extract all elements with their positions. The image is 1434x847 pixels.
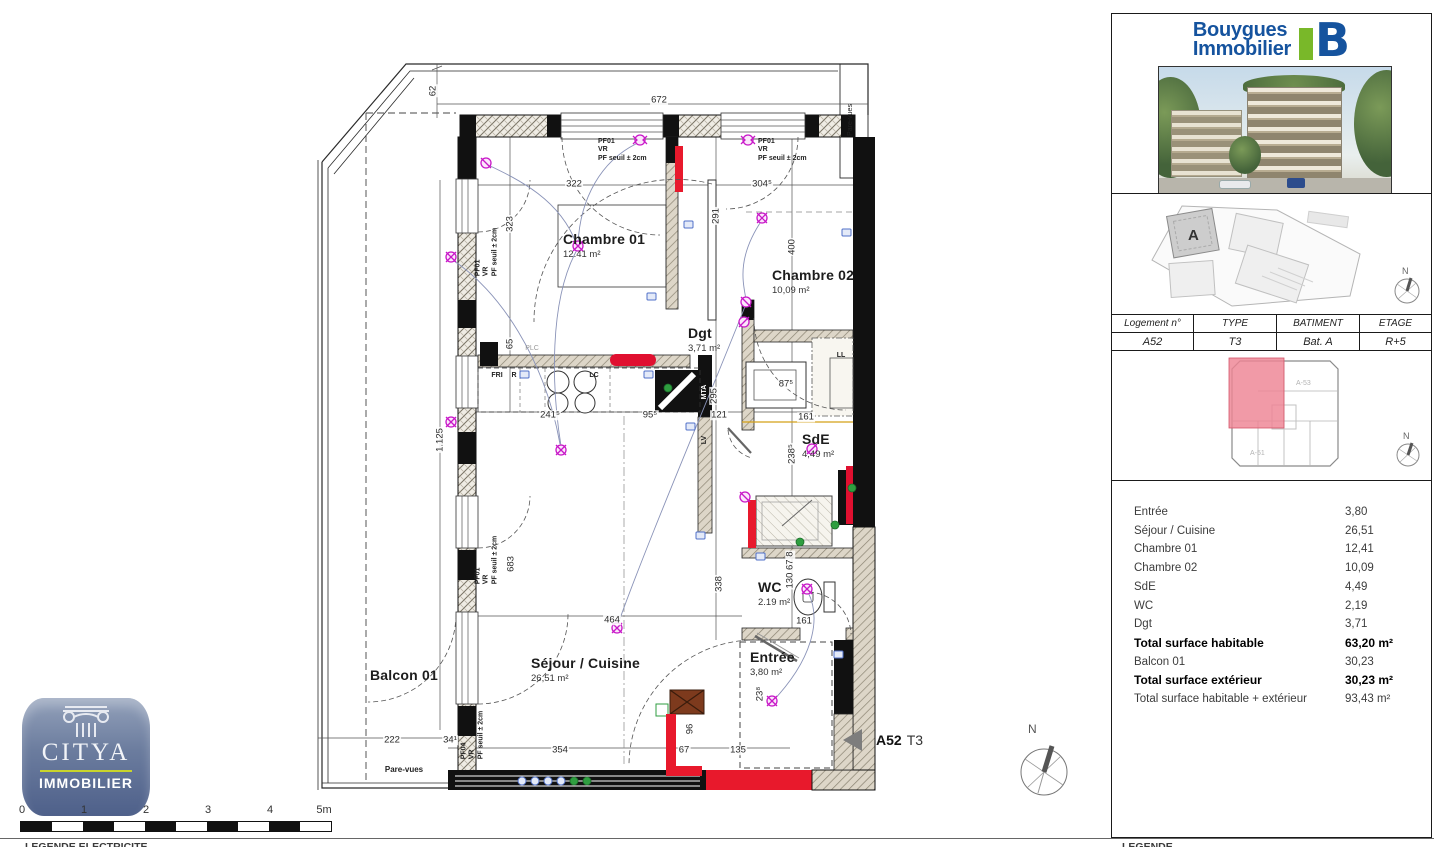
svg-text:A-51: A-51 — [1250, 450, 1265, 457]
site-plan-drawing: A N — [1112, 194, 1431, 313]
dimension-label: 295 — [709, 387, 719, 405]
area-row: SdE4,49 — [1134, 578, 1419, 597]
area-row: Chambre 0210,09 — [1134, 559, 1419, 578]
bouygues-logo: Bouygues Immobilier B — [1112, 14, 1431, 66]
bouygues-b-icon: B — [1299, 20, 1350, 60]
key-plan-compass-icon: N — [1397, 431, 1419, 466]
dimension-label: 338 — [714, 575, 724, 593]
svg-text:N: N — [1402, 266, 1409, 276]
dimension-label: 354 — [551, 745, 569, 755]
pare-vues-label: Pare-vues — [385, 765, 423, 775]
dimension-label: 96 — [685, 723, 695, 736]
svg-text:A: A — [1188, 227, 1199, 244]
citya-divider — [40, 770, 132, 772]
table-header: BATIMENT — [1277, 315, 1360, 333]
citya-logo: CITYA IMMOBILIER — [22, 698, 150, 816]
areas-table: Entrée3,80 Séjour / Cuisine26,51 Chambre… — [1112, 479, 1431, 709]
key-plan-panel: A-53 A-51 N — [1112, 350, 1431, 481]
table-header: Logement n° — [1112, 315, 1194, 333]
dimension-label: 95⁵ — [642, 410, 659, 420]
site-plan-panel: A N — [1112, 193, 1431, 315]
window-label-pf01: PF01 VR PF seuil ± 2cm — [474, 228, 499, 277]
citya-name: CITYA — [42, 739, 131, 767]
window-label-pf01: PF01 VR PF seuil ± 2cm — [474, 536, 499, 585]
room-label-chambre-02: Chambre 02 10,09 m² — [772, 268, 854, 297]
scale-bar-segments — [20, 821, 332, 832]
dimension-label: 65 — [505, 338, 515, 351]
sheet: Chambre 01 12.41 m² Chambre 02 10,09 m² … — [0, 0, 1434, 847]
dimension-label: 1.125 — [435, 427, 445, 453]
room-label-dgt: Dgt 3,71 m² — [688, 326, 720, 355]
dimension-label: 161 — [795, 616, 813, 626]
dimension-label: 683 — [506, 555, 516, 573]
window-label-pf04: PF04 VR PF seuil ± 2cm — [460, 711, 485, 760]
svg-text:A-53: A-53 — [1296, 380, 1311, 387]
window-label-pf01: PF01 VR PF seuil ± 2cm — [598, 138, 647, 163]
scale-bar: 0 1 2 3 4 5m — [20, 804, 332, 832]
area-row: Chambre 0112,41 — [1134, 540, 1419, 559]
dimension-label: 241⁵ — [539, 410, 561, 420]
dimension-label: 23⁸ — [755, 686, 765, 703]
building-render-photo — [1158, 66, 1392, 194]
dimension-label: 130 67 8 — [785, 551, 795, 590]
key-plan-drawing: A-53 A-51 N — [1112, 351, 1431, 478]
dimension-label: 323 — [505, 215, 515, 233]
area-row: Entrée3,80 — [1134, 503, 1419, 522]
area-row-total-exterieur: Total surface extérieur30,23 m² — [1134, 671, 1419, 690]
table-value-type: T3 — [1194, 333, 1277, 351]
scale-ticks: 0 1 2 3 4 5m — [20, 804, 332, 818]
title-block-sidebar: Bouygues Immobilier B — [1111, 13, 1432, 838]
room-label-sde: SdE 4,49 m² — [802, 432, 834, 461]
dimension-label: 672 — [650, 95, 668, 105]
floor-plan-area: Chambre 01 12.41 m² Chambre 02 10,09 m² … — [0, 0, 1111, 838]
dimension-label: 322 — [565, 179, 583, 189]
dimension-label: 238⁵ — [787, 443, 797, 465]
area-row: Dgt3,71 — [1134, 615, 1419, 634]
kitchen-label-fri: FRI — [491, 372, 502, 380]
dimension-label: 135 — [729, 745, 747, 755]
plc-label: PLC — [525, 345, 539, 353]
dimension-label: 121 — [710, 410, 728, 420]
dimension-label: 67 — [678, 745, 691, 755]
ll-label: LL — [837, 352, 846, 360]
unit-number: A52T3 — [876, 732, 923, 748]
table-value-batiment: Bat. A — [1277, 333, 1360, 351]
lv-label: LV — [701, 436, 709, 444]
dimension-label: 222 — [383, 735, 401, 745]
area-row-total-global: Total surface habitable + extérieur93,43… — [1134, 690, 1419, 709]
citya-subtitle: IMMOBILIER — [39, 775, 133, 791]
table-header: ETAGE — [1360, 315, 1431, 333]
svg-text:N: N — [1403, 431, 1410, 441]
room-label-entree: Entrée 3,80 m² — [750, 650, 795, 679]
dimension-label: 400 — [787, 238, 797, 256]
area-row: Balcon 0130,23 — [1134, 653, 1419, 672]
window-label-pf01: PF01 VR PF seuil ± 2cm — [758, 138, 807, 163]
dimension-label: 304⁵ — [751, 179, 773, 189]
bouygues-wordmark: Bouygues Immobilier — [1193, 21, 1291, 59]
room-label-balcon-01: Balcon 01 — [370, 668, 438, 683]
legend-title: LEGENDE — [1122, 841, 1173, 847]
footer-strip: LEGENDE ELECTRICITE LEGENDE — [0, 838, 1434, 847]
pare-vues-label: Pare-vues — [847, 104, 855, 136]
compass-icon: N — [1014, 722, 1074, 804]
left-triangle-icon — [843, 729, 862, 751]
kitchen-label-lc: LC — [589, 372, 598, 380]
dimension-label: 161 — [797, 412, 815, 422]
site-plan-compass-icon: N — [1395, 266, 1419, 303]
dimension-label: 291 — [711, 207, 721, 225]
unit-marker: A52T3 — [843, 729, 923, 751]
dimension-label: 464 — [603, 615, 621, 625]
table-header: TYPE — [1194, 315, 1277, 333]
kitchen-label-r: R — [511, 372, 516, 380]
dimension-label: 62 — [428, 85, 438, 98]
area-row-total-habitable: Total surface habitable63,20 m² — [1134, 634, 1419, 653]
room-label-chambre-01: Chambre 01 12.41 m² — [563, 232, 645, 261]
area-row: WC2,19 — [1134, 597, 1419, 616]
unit-info-table: Logement n° TYPE BATIMENT ETAGE A52 T3 B… — [1112, 314, 1431, 351]
dimension-label: 87⁵ — [778, 379, 795, 389]
legend-electricite-title: LEGENDE ELECTRICITE — [25, 841, 148, 847]
table-value-logement: A52 — [1112, 333, 1194, 351]
dimension-label: 34¹ — [442, 735, 458, 745]
column-capital-icon — [59, 705, 113, 739]
room-label-sejour-cuisine: Séjour / Cuisine 26,51 m² — [531, 656, 640, 685]
table-value-etage: R+5 — [1360, 333, 1431, 351]
unit-type: T3 — [907, 732, 923, 748]
compass-north-label: N — [1028, 722, 1037, 736]
area-row: Séjour / Cuisine26,51 — [1134, 522, 1419, 541]
mta-label: MTA — [701, 385, 709, 400]
